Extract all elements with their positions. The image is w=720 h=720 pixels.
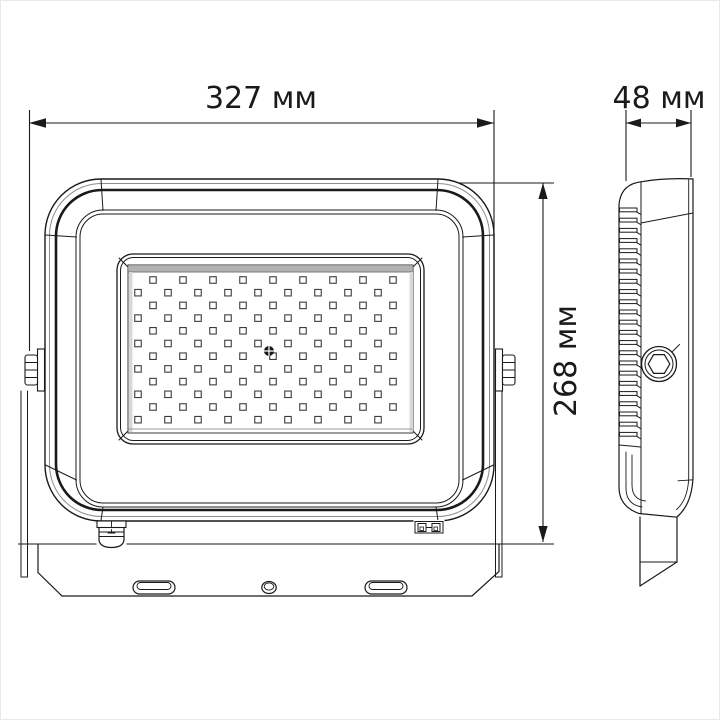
- led-square: [180, 328, 187, 335]
- heatsink-fin-edge: [637, 426, 642, 429]
- heatsink-fin: [620, 432, 638, 436]
- led-square: [375, 366, 382, 373]
- arrowhead-left-icon: [29, 118, 46, 128]
- led-square: [150, 328, 157, 335]
- led-square: [300, 353, 307, 360]
- led-square: [300, 277, 307, 284]
- led-square: [270, 378, 277, 385]
- led-panel-shade-left: [129, 272, 133, 432]
- heatsink-fin: [620, 361, 638, 365]
- led-square: [390, 353, 397, 360]
- led-square: [255, 416, 262, 423]
- led-square: [150, 302, 157, 309]
- led-square: [330, 302, 337, 309]
- heatsink-fin-edge: [637, 304, 642, 307]
- heatsink-fin-edge: [637, 406, 642, 409]
- led-square: [210, 302, 217, 309]
- heatsink-fin: [620, 279, 638, 283]
- led-square: [135, 315, 142, 322]
- led-square: [300, 404, 307, 411]
- led-square: [270, 277, 277, 284]
- led-square: [210, 328, 217, 335]
- led-square: [255, 315, 262, 322]
- led-square: [345, 416, 352, 423]
- arrowhead-up-icon: [538, 183, 547, 199]
- led-square: [375, 391, 382, 398]
- led-square: [390, 378, 397, 385]
- led-square: [195, 315, 202, 322]
- led-square: [150, 353, 157, 360]
- heatsink-fin-edge: [637, 222, 642, 225]
- led-square: [360, 277, 367, 284]
- heatsink-fin: [620, 341, 638, 345]
- terminal-clip: [414, 520, 445, 535]
- led-square: [285, 289, 292, 296]
- led-square: [210, 277, 217, 284]
- facet-line: [463, 235, 494, 237]
- led-square: [255, 391, 262, 398]
- heatsink-fin: [620, 402, 638, 406]
- led-square: [330, 353, 337, 360]
- led-square: [150, 378, 157, 385]
- led-square: [195, 391, 202, 398]
- led-square: [315, 289, 322, 296]
- led-square: [225, 289, 232, 296]
- led-square: [180, 378, 187, 385]
- led-square: [240, 353, 247, 360]
- led-square: [210, 404, 217, 411]
- led-square: [315, 416, 322, 423]
- side-bracket-bottom-slant: [640, 562, 677, 586]
- arrowhead-right-icon: [477, 118, 494, 128]
- heatsink-fin-edge: [637, 242, 642, 245]
- heatsink-fin: [620, 290, 638, 294]
- bracket-outline: [38, 544, 499, 596]
- heatsink-fin-edge: [637, 283, 642, 286]
- heatsink-fin-edge: [637, 273, 642, 276]
- led-square: [270, 328, 277, 335]
- heatsink-fin-edge: [637, 365, 642, 368]
- led-square: [285, 416, 292, 423]
- led-square: [210, 353, 217, 360]
- led-square: [360, 404, 367, 411]
- mounting-bracket: [38, 544, 499, 596]
- heatsink-fin: [620, 320, 638, 324]
- heatsink-fin: [620, 269, 638, 273]
- heatsink-fin-edge: [637, 344, 642, 347]
- bracket-slot-right-inner: [369, 583, 403, 590]
- led-square: [225, 416, 232, 423]
- facet-line: [46, 235, 77, 237]
- led-square: [345, 340, 352, 347]
- heatsink-fin: [620, 239, 638, 243]
- heatsink-fin-edge: [637, 324, 642, 327]
- led-square: [330, 404, 337, 411]
- side-bottom-seam: [678, 480, 693, 481]
- led-square: [165, 289, 172, 296]
- led-square: [330, 328, 337, 335]
- led-square: [390, 277, 397, 284]
- led-square: [315, 366, 322, 373]
- heatsink-fin-edge: [637, 212, 642, 215]
- led-square: [360, 302, 367, 309]
- led-square: [375, 416, 382, 423]
- side-view: [619, 179, 693, 586]
- side-top-left-corner: [619, 182, 641, 205]
- side-gland-arc-inner: [632, 455, 646, 501]
- dimension-width-label: 327 мм: [205, 81, 317, 116]
- led-square: [195, 366, 202, 373]
- heatsink-fin: [620, 249, 638, 253]
- led-square: [300, 328, 307, 335]
- led-square: [135, 366, 142, 373]
- led-square: [375, 340, 382, 347]
- led-panel-shade-top: [129, 266, 412, 272]
- led-square: [180, 302, 187, 309]
- led-square: [330, 378, 337, 385]
- heatsink-fin: [620, 371, 638, 375]
- heatsink-fin: [620, 310, 638, 314]
- heatsink-fin-edge: [637, 395, 642, 398]
- led-square: [225, 391, 232, 398]
- heatsink-fin: [620, 218, 638, 222]
- heatsink-fin: [620, 351, 638, 355]
- led-panel-shade-right: [410, 272, 414, 432]
- led-square: [270, 404, 277, 411]
- led-square: [135, 340, 142, 347]
- knob-outer-circle: [642, 347, 677, 382]
- heatsink-fin-edge: [637, 375, 642, 378]
- heatsink-fin: [620, 392, 638, 396]
- heatsink-fin-edge: [637, 334, 642, 337]
- led-square: [390, 404, 397, 411]
- led-square: [360, 378, 367, 385]
- led-square: [390, 328, 397, 335]
- yoke-arm-left: [21, 391, 28, 577]
- dimension-height-label: 268 мм: [549, 305, 584, 417]
- heatsink-fin: [620, 330, 638, 334]
- side-top-seam: [641, 213, 693, 223]
- led-panel: [128, 265, 413, 433]
- led-square: [240, 328, 247, 335]
- drawing-canvas: 327 мм 48 мм 268 мм: [0, 0, 720, 720]
- led-square: [255, 340, 262, 347]
- center-screw-icon: [264, 346, 274, 356]
- knob-left: [25, 349, 45, 391]
- led-square: [345, 366, 352, 373]
- arrowhead-right-icon: [676, 119, 691, 128]
- led-square: [240, 277, 247, 284]
- led-square: [285, 366, 292, 373]
- led-square: [315, 391, 322, 398]
- led-square: [225, 366, 232, 373]
- heatsink-fin-edge: [637, 232, 642, 235]
- led-square: [285, 391, 292, 398]
- led-square: [195, 289, 202, 296]
- led-square: [165, 340, 172, 347]
- heatsink-fin-edge: [637, 436, 642, 439]
- heatsink-fin: [620, 300, 638, 304]
- side-gland-arc-outer: [626, 452, 642, 507]
- heatsink-fin: [620, 422, 638, 426]
- led-square: [345, 315, 352, 322]
- led-square: [240, 404, 247, 411]
- led-square: [270, 302, 277, 309]
- led-square: [150, 277, 157, 284]
- led-square: [330, 277, 337, 284]
- led-square: [180, 404, 187, 411]
- led-square: [195, 416, 202, 423]
- led-square: [285, 340, 292, 347]
- led-square: [360, 353, 367, 360]
- led-square: [150, 404, 157, 411]
- led-square: [300, 302, 307, 309]
- led-square: [225, 340, 232, 347]
- arrowhead-down-icon: [538, 526, 547, 542]
- led-square: [180, 353, 187, 360]
- led-square: [315, 315, 322, 322]
- led-square: [255, 289, 262, 296]
- heatsink-fin-edge: [637, 263, 642, 266]
- led-square: [195, 340, 202, 347]
- side-bracket: [640, 517, 677, 586]
- arrowhead-left-icon: [626, 119, 641, 128]
- heatsink-fin-edge: [637, 385, 642, 388]
- cable-gland: [97, 521, 127, 548]
- heatsink-fin-edge: [637, 314, 642, 317]
- led-square: [360, 328, 367, 335]
- led-square: [285, 315, 292, 322]
- led-square: [165, 391, 172, 398]
- bracket-slot-left-inner: [137, 583, 171, 590]
- led-square: [390, 302, 397, 309]
- led-square: [225, 315, 232, 322]
- heatsink-fin-edge: [637, 253, 642, 256]
- heatsink-fin: [620, 259, 638, 263]
- led-square: [255, 366, 262, 373]
- led-square: [165, 416, 172, 423]
- led-square: [180, 277, 187, 284]
- heatsink-fin-edge: [637, 355, 642, 358]
- facet-line: [101, 180, 103, 211]
- heatsink-fin-edge: [637, 293, 642, 296]
- side-bottom-left: [619, 445, 677, 517]
- front-view: [21, 179, 515, 596]
- heatsink-fin: [620, 381, 638, 385]
- led-square: [165, 315, 172, 322]
- led-square: [345, 391, 352, 398]
- knob-tick: [673, 345, 680, 352]
- dimension-depth-label: 48 мм: [613, 81, 706, 116]
- led-square: [240, 302, 247, 309]
- knob-plate: [38, 349, 45, 391]
- knob-plate: [496, 349, 503, 391]
- heatsink-fin: [620, 208, 638, 212]
- side-fin-bottom: [619, 445, 641, 447]
- led-square: [135, 416, 142, 423]
- knob-right: [496, 349, 516, 391]
- floodlight-dimension-drawing: 327 мм 48 мм 268 мм: [0, 0, 720, 720]
- led-square: [240, 378, 247, 385]
- led-square: [135, 391, 142, 398]
- bracket-hole-center-inner: [264, 583, 274, 590]
- led-square: [135, 289, 142, 296]
- heatsink-fin: [620, 412, 638, 416]
- led-square: [315, 340, 322, 347]
- heatsink-fin-edge: [637, 416, 642, 419]
- led-square: [210, 378, 217, 385]
- led-square: [300, 378, 307, 385]
- side-hex-knob: [642, 345, 680, 382]
- heatsink-fin: [620, 228, 638, 232]
- led-square: [375, 315, 382, 322]
- led-square: [375, 289, 382, 296]
- led-square: [165, 366, 172, 373]
- led-square: [345, 289, 352, 296]
- heatsink-fins: [620, 208, 642, 439]
- facet-line: [436, 180, 438, 211]
- side-top-edge: [641, 179, 693, 182]
